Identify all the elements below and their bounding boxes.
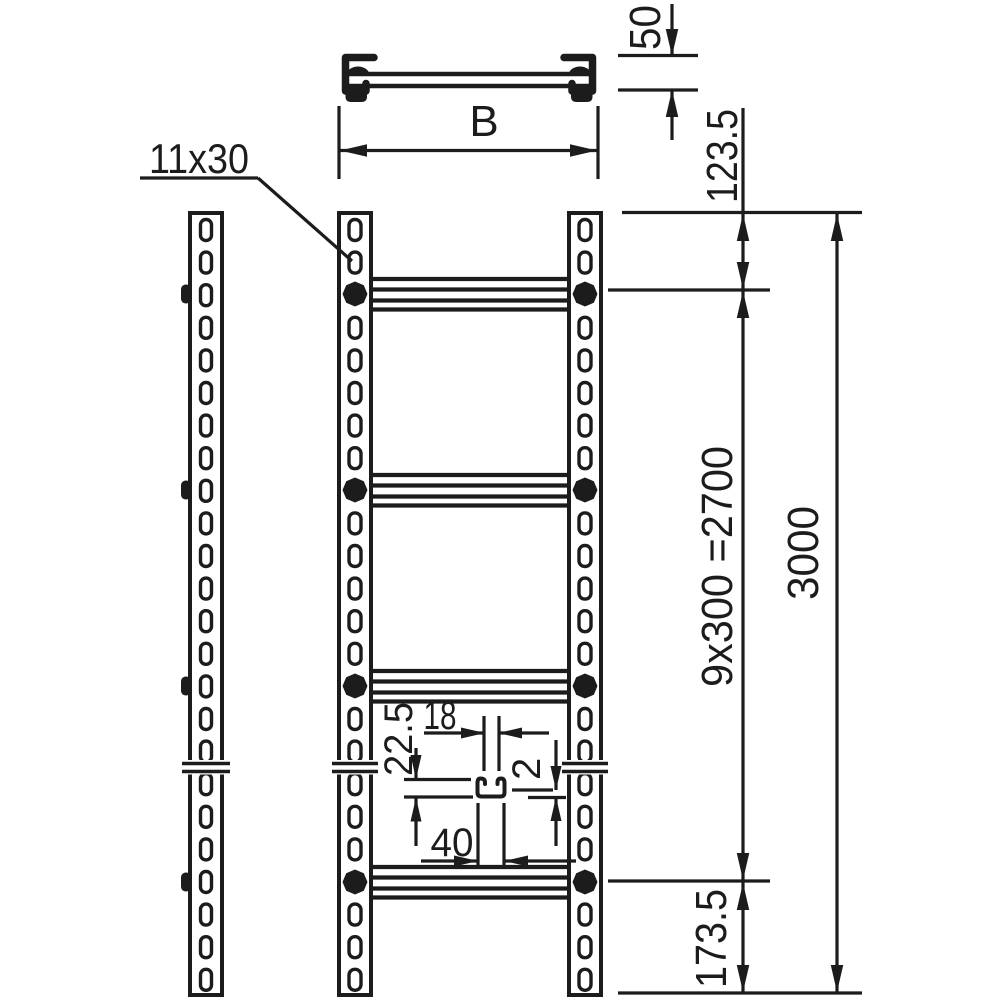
rail-slot-11x30 xyxy=(579,643,591,664)
label-profile-height-50: 50 xyxy=(621,5,670,50)
rivet-foot-left xyxy=(346,92,368,102)
dimension-arrowhead xyxy=(737,883,750,910)
rail-slot-11x30 xyxy=(579,937,591,958)
rail-slot-11x30 xyxy=(579,839,591,860)
rail-slot-11x30 xyxy=(201,872,212,893)
rung-rivet xyxy=(343,478,368,503)
dimension-arrowhead xyxy=(737,262,750,289)
label-total-length-3000: 3000 xyxy=(779,506,828,600)
rail-slot-11x30 xyxy=(579,448,591,469)
rail-slot-11x30 xyxy=(349,643,361,664)
rail-slot-11x30 xyxy=(579,741,591,762)
rail-slot-11x30 xyxy=(579,578,591,599)
drawing-canvas: 11x30 B 50 123.5 9x300 =2700 3000 173.5 … xyxy=(0,0,1000,1000)
rail-slot-11x30 xyxy=(349,415,361,436)
rivet-foot-right xyxy=(571,92,593,102)
rail-slot-11x30 xyxy=(349,350,361,371)
rail-slot-11x30 xyxy=(349,513,361,534)
dimension-arrowhead xyxy=(570,144,597,157)
rail-slot-11x30 xyxy=(201,383,212,404)
rail-slot-11x30 xyxy=(201,774,212,795)
rail-slot-11x30 xyxy=(201,839,212,860)
rail-slot-11x30 xyxy=(201,546,212,567)
rail-slot-11x30 xyxy=(201,937,212,958)
label-slot-size: 11x30 xyxy=(149,135,249,182)
rail-slot-11x30 xyxy=(201,415,212,436)
rail-slot-11x30 xyxy=(349,448,361,469)
front-view-ladder xyxy=(332,213,608,995)
rail-slot-11x30 xyxy=(201,285,212,306)
rail-slot-11x30 xyxy=(201,709,212,730)
rivet-dome-right xyxy=(569,67,591,75)
rung-rivet xyxy=(343,282,368,307)
rivet-dome-left xyxy=(347,67,369,75)
rail-slot-11x30 xyxy=(579,709,591,730)
top-view-cross-section xyxy=(344,58,594,103)
rail-slot-11x30 xyxy=(201,676,212,697)
rail-slot-11x30 xyxy=(349,904,361,925)
dimension-arrowhead xyxy=(666,90,679,117)
rail-slot-11x30 xyxy=(201,448,212,469)
rung-rivet xyxy=(573,478,598,503)
rail-slot-11x30 xyxy=(579,611,591,632)
dimension-arrowhead xyxy=(737,853,750,880)
rail-slot-11x30 xyxy=(201,220,212,241)
dimension-arrowhead xyxy=(831,214,844,241)
rail-slot-11x30 xyxy=(201,969,212,990)
rail-slot-11x30 xyxy=(349,774,361,795)
dimension-arrowhead xyxy=(504,856,528,867)
rail-slot-11x30 xyxy=(579,350,591,371)
label-rung-width-40: 40 xyxy=(431,821,474,865)
label-rung-opening-18: 18 xyxy=(424,694,457,738)
rail-slot-11x30 xyxy=(579,969,591,990)
label-rung-height-22-5: 22.5 xyxy=(377,702,421,776)
rail-slot-11x30 xyxy=(349,252,361,273)
dimension-arrowhead xyxy=(551,797,562,821)
rail-slot-11x30 xyxy=(579,806,591,827)
label-rung-thickness-2: 2 xyxy=(505,758,549,780)
rung-rivet xyxy=(573,870,598,895)
rail-slot-11x30 xyxy=(201,578,212,599)
rung-rivet-head-side xyxy=(181,285,191,304)
rail-slot-11x30 xyxy=(579,904,591,925)
rung-rivet-head-side xyxy=(181,873,191,892)
rung-rivet xyxy=(343,870,368,895)
rail-slot-11x30 xyxy=(201,317,212,338)
dimension-arrowhead xyxy=(737,965,750,992)
dimension-arrowhead xyxy=(411,798,422,822)
dimension-arrowhead xyxy=(340,144,367,157)
rail-slot-11x30 xyxy=(579,415,591,436)
rail-slot-11x30 xyxy=(201,350,212,371)
rail-slot-11x30 xyxy=(201,480,212,501)
dimension-arrowhead xyxy=(551,766,562,790)
rail-slot-11x30 xyxy=(349,969,361,990)
rail-slot-11x30 xyxy=(579,513,591,534)
label-width-b: B xyxy=(469,97,498,146)
rail-slot-11x30 xyxy=(349,741,361,762)
rail-slot-11x30 xyxy=(201,643,212,664)
rail-slot-11x30 xyxy=(349,383,361,404)
rail-slot-11x30 xyxy=(201,904,212,925)
rail-slot-11x30 xyxy=(349,709,361,730)
rail-slot-11x30 xyxy=(349,839,361,860)
rail-slot-11x30 xyxy=(349,806,361,827)
rung-rivet-head-side xyxy=(181,481,191,500)
dimension-arrowhead xyxy=(737,291,750,318)
rail-slot-11x30 xyxy=(201,806,212,827)
rung-profile-detail xyxy=(478,779,505,797)
rail-slot-11x30 xyxy=(201,741,212,762)
dimension-arrowhead xyxy=(831,965,844,992)
rail-slot-11x30 xyxy=(579,317,591,338)
label-last-rung-offset-173-5: 173.5 xyxy=(687,889,736,988)
rung-rivet-head-side xyxy=(181,677,191,696)
rail-slot-11x30 xyxy=(349,317,361,338)
label-first-rung-offset-123-5: 123.5 xyxy=(698,109,747,203)
side-view-rail xyxy=(181,213,230,995)
rail-slot-11x30 xyxy=(349,937,361,958)
rung-rivet xyxy=(573,282,598,307)
label-rung-spacing-2700: 9x300 =2700 xyxy=(693,446,742,687)
cable-ladder-technical-drawing: 11x30 B 50 123.5 9x300 =2700 3000 173.5 … xyxy=(0,0,1000,1000)
rail-slot-11x30 xyxy=(349,611,361,632)
rail-slot-11x30 xyxy=(579,252,591,273)
rail-slot-11x30 xyxy=(349,546,361,567)
dimension-arrowhead xyxy=(498,728,522,739)
rung-rivet xyxy=(343,674,368,699)
rail-slot-11x30 xyxy=(579,220,591,241)
rail-slot-11x30 xyxy=(349,220,361,241)
rail-slot-11x30 xyxy=(201,513,212,534)
rail-slot-11x30 xyxy=(201,611,212,632)
rail-slot-11x30 xyxy=(579,383,591,404)
dimension-arrowhead xyxy=(461,728,485,739)
rung-rivet xyxy=(573,674,598,699)
rung-c-profile-symbol xyxy=(478,779,505,797)
rail-slot-11x30 xyxy=(201,252,212,273)
rail-slot-11x30 xyxy=(349,578,361,599)
rail-slot-11x30 xyxy=(579,774,591,795)
dimension-arrowhead xyxy=(737,214,750,241)
rail-slot-11x30 xyxy=(579,546,591,567)
